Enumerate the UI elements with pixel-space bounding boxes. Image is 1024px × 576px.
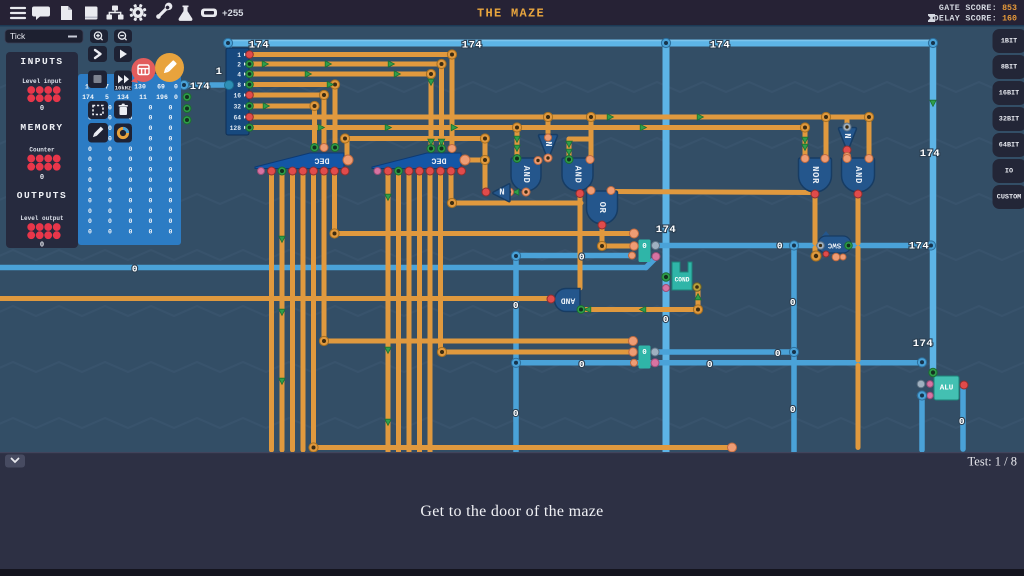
svg-text:0: 0: [129, 177, 133, 184]
svg-text:0: 0: [169, 156, 173, 163]
svg-text:0: 0: [88, 218, 92, 225]
svg-text:OR: OR: [597, 202, 607, 214]
svg-text:0: 0: [169, 166, 173, 173]
svg-text:0: 0: [129, 218, 133, 225]
svg-text:0: 0: [108, 115, 112, 122]
svg-text:16BIT: 16BIT: [999, 90, 1019, 98]
svg-text:DEC: DEC: [314, 156, 329, 166]
svg-text:174: 174: [909, 241, 929, 253]
svg-text:GATE SCORE:: GATE SCORE:: [939, 4, 997, 13]
svg-text:0: 0: [169, 135, 173, 142]
svg-text:0: 0: [513, 408, 519, 419]
svg-text:0: 0: [108, 146, 112, 153]
svg-text:COND: COND: [675, 277, 690, 284]
svg-text:0: 0: [108, 166, 112, 173]
svg-text:Test: 1 / 8: Test: 1 / 8: [968, 455, 1017, 469]
svg-text:0: 0: [642, 349, 647, 357]
svg-text:0: 0: [149, 229, 153, 236]
svg-text:AND: AND: [573, 166, 583, 184]
svg-text:8BIT: 8BIT: [1001, 64, 1017, 72]
svg-text:1: 1: [237, 52, 241, 59]
svg-text:0: 0: [149, 135, 153, 142]
svg-text:MEMORY: MEMORY: [20, 122, 63, 133]
svg-text:0: 0: [777, 241, 783, 252]
svg-text:Counter: Counter: [29, 147, 55, 154]
svg-text:1: 1: [216, 66, 223, 78]
svg-text:Get to the door of the maze: Get to the door of the maze: [420, 503, 603, 520]
svg-text:0: 0: [129, 208, 133, 215]
svg-text:69: 69: [157, 84, 165, 91]
svg-text:0: 0: [108, 177, 112, 184]
svg-text:0: 0: [169, 218, 173, 225]
svg-text:0: 0: [129, 166, 133, 173]
svg-text:0: 0: [149, 146, 153, 153]
svg-text:174: 174: [462, 40, 482, 52]
svg-text:0: 0: [88, 156, 92, 163]
svg-text:0: 0: [129, 229, 133, 236]
svg-text:N: N: [842, 133, 852, 138]
svg-text:174: 174: [249, 40, 269, 52]
svg-text:0: 0: [149, 166, 153, 173]
svg-text:NOR: NOR: [810, 166, 820, 184]
svg-text:0: 0: [149, 198, 153, 205]
svg-text:0: 0: [169, 104, 173, 111]
svg-text:DEC: DEC: [431, 156, 446, 166]
svg-text:10kHz: 10kHz: [115, 85, 132, 92]
svg-text:853: 853: [1002, 4, 1017, 13]
svg-text:0: 0: [149, 104, 153, 111]
svg-text:0: 0: [108, 104, 112, 111]
svg-text:0: 0: [149, 187, 153, 194]
svg-text:0: 0: [707, 359, 713, 370]
svg-text:0: 0: [88, 146, 92, 153]
svg-text:0: 0: [88, 166, 92, 173]
svg-text:INPUTS: INPUTS: [20, 56, 63, 67]
svg-text:0: 0: [790, 404, 796, 415]
svg-text:5: 5: [105, 94, 109, 101]
svg-text:0: 0: [129, 156, 133, 163]
svg-text:0: 0: [149, 177, 153, 184]
svg-text:0: 0: [579, 359, 585, 370]
svg-text:0: 0: [579, 252, 585, 263]
svg-text:AND: AND: [853, 166, 863, 184]
svg-text:0: 0: [40, 242, 44, 250]
svg-text:0: 0: [149, 208, 153, 215]
svg-text:0: 0: [108, 218, 112, 225]
svg-text:130: 130: [134, 84, 146, 91]
svg-text:0: 0: [88, 229, 92, 236]
svg-text:0: 0: [108, 229, 112, 236]
svg-text:0: 0: [169, 146, 173, 153]
svg-text:174: 174: [913, 338, 933, 350]
svg-text:0: 0: [108, 135, 112, 142]
svg-text:128: 128: [230, 125, 242, 132]
svg-text:174: 174: [656, 224, 676, 236]
svg-text:IO: IO: [1005, 168, 1013, 176]
svg-text:0: 0: [88, 177, 92, 184]
svg-text:DELAY SCORE:: DELAY SCORE:: [934, 15, 997, 24]
svg-text:174: 174: [710, 40, 730, 52]
svg-text:174: 174: [920, 148, 940, 160]
svg-text:0: 0: [169, 187, 173, 194]
svg-text:134: 134: [117, 94, 129, 101]
svg-text:ALU: ALU: [940, 385, 954, 393]
svg-text:N: N: [499, 188, 504, 198]
svg-text:0: 0: [513, 300, 519, 311]
svg-text:0: 0: [88, 187, 92, 194]
svg-text:0: 0: [129, 198, 133, 205]
svg-text:0: 0: [169, 115, 173, 122]
svg-text:0: 0: [108, 198, 112, 205]
svg-text:0: 0: [149, 115, 153, 122]
svg-text:0: 0: [88, 208, 92, 215]
svg-text:Level output: Level output: [20, 215, 64, 222]
svg-text:0: 0: [169, 125, 173, 132]
svg-text:8: 8: [237, 82, 241, 89]
svg-text:THE MAZE: THE MAZE: [477, 7, 545, 21]
svg-text:0: 0: [642, 243, 647, 251]
svg-text:0: 0: [108, 125, 112, 132]
svg-text:CUSTOM: CUSTOM: [997, 194, 1021, 202]
svg-text:0: 0: [169, 208, 173, 215]
svg-text:0: 0: [40, 105, 44, 113]
svg-text:16: 16: [233, 92, 241, 99]
svg-text:174: 174: [82, 94, 94, 101]
svg-text:0: 0: [149, 218, 153, 225]
svg-text:0: 0: [132, 264, 138, 275]
svg-text:0: 0: [775, 348, 781, 359]
svg-text:1BIT: 1BIT: [1001, 38, 1017, 46]
svg-text:160: 160: [1002, 15, 1017, 24]
svg-text:+255: +255: [222, 8, 244, 19]
svg-text:AND: AND: [561, 296, 576, 305]
svg-text:0: 0: [149, 125, 153, 132]
svg-text:SWC: SWC: [827, 241, 841, 249]
svg-text:64BIT: 64BIT: [999, 142, 1019, 150]
svg-text:Tick: Tick: [10, 31, 26, 41]
svg-text:0: 0: [129, 187, 133, 194]
svg-text:0: 0: [663, 314, 669, 325]
svg-text:196: 196: [156, 94, 168, 101]
svg-text:32: 32: [233, 103, 241, 110]
svg-text:64: 64: [233, 114, 241, 121]
svg-text:0: 0: [149, 156, 153, 163]
svg-text:Level input: Level input: [22, 78, 62, 85]
svg-text:0: 0: [88, 198, 92, 205]
svg-text:0: 0: [169, 198, 173, 205]
svg-text:174: 174: [190, 81, 210, 93]
svg-text:0: 0: [169, 177, 173, 184]
svg-text:0: 0: [108, 187, 112, 194]
svg-text:N: N: [543, 141, 553, 146]
svg-text:0: 0: [174, 94, 178, 101]
svg-text:0: 0: [169, 229, 173, 236]
svg-text:0: 0: [40, 174, 44, 182]
svg-text:32BIT: 32BIT: [999, 116, 1019, 124]
svg-text:AND: AND: [521, 166, 531, 184]
svg-text:2: 2: [237, 61, 241, 68]
svg-text:0: 0: [108, 156, 112, 163]
svg-text:0: 0: [108, 208, 112, 215]
svg-text:0: 0: [129, 146, 133, 153]
svg-text:0: 0: [174, 84, 178, 91]
svg-text:0: 0: [790, 297, 796, 308]
svg-text:0: 0: [959, 416, 965, 427]
svg-text:11: 11: [139, 94, 147, 101]
svg-text:OUTPUTS: OUTPUTS: [17, 190, 67, 201]
svg-text:4: 4: [237, 71, 241, 78]
